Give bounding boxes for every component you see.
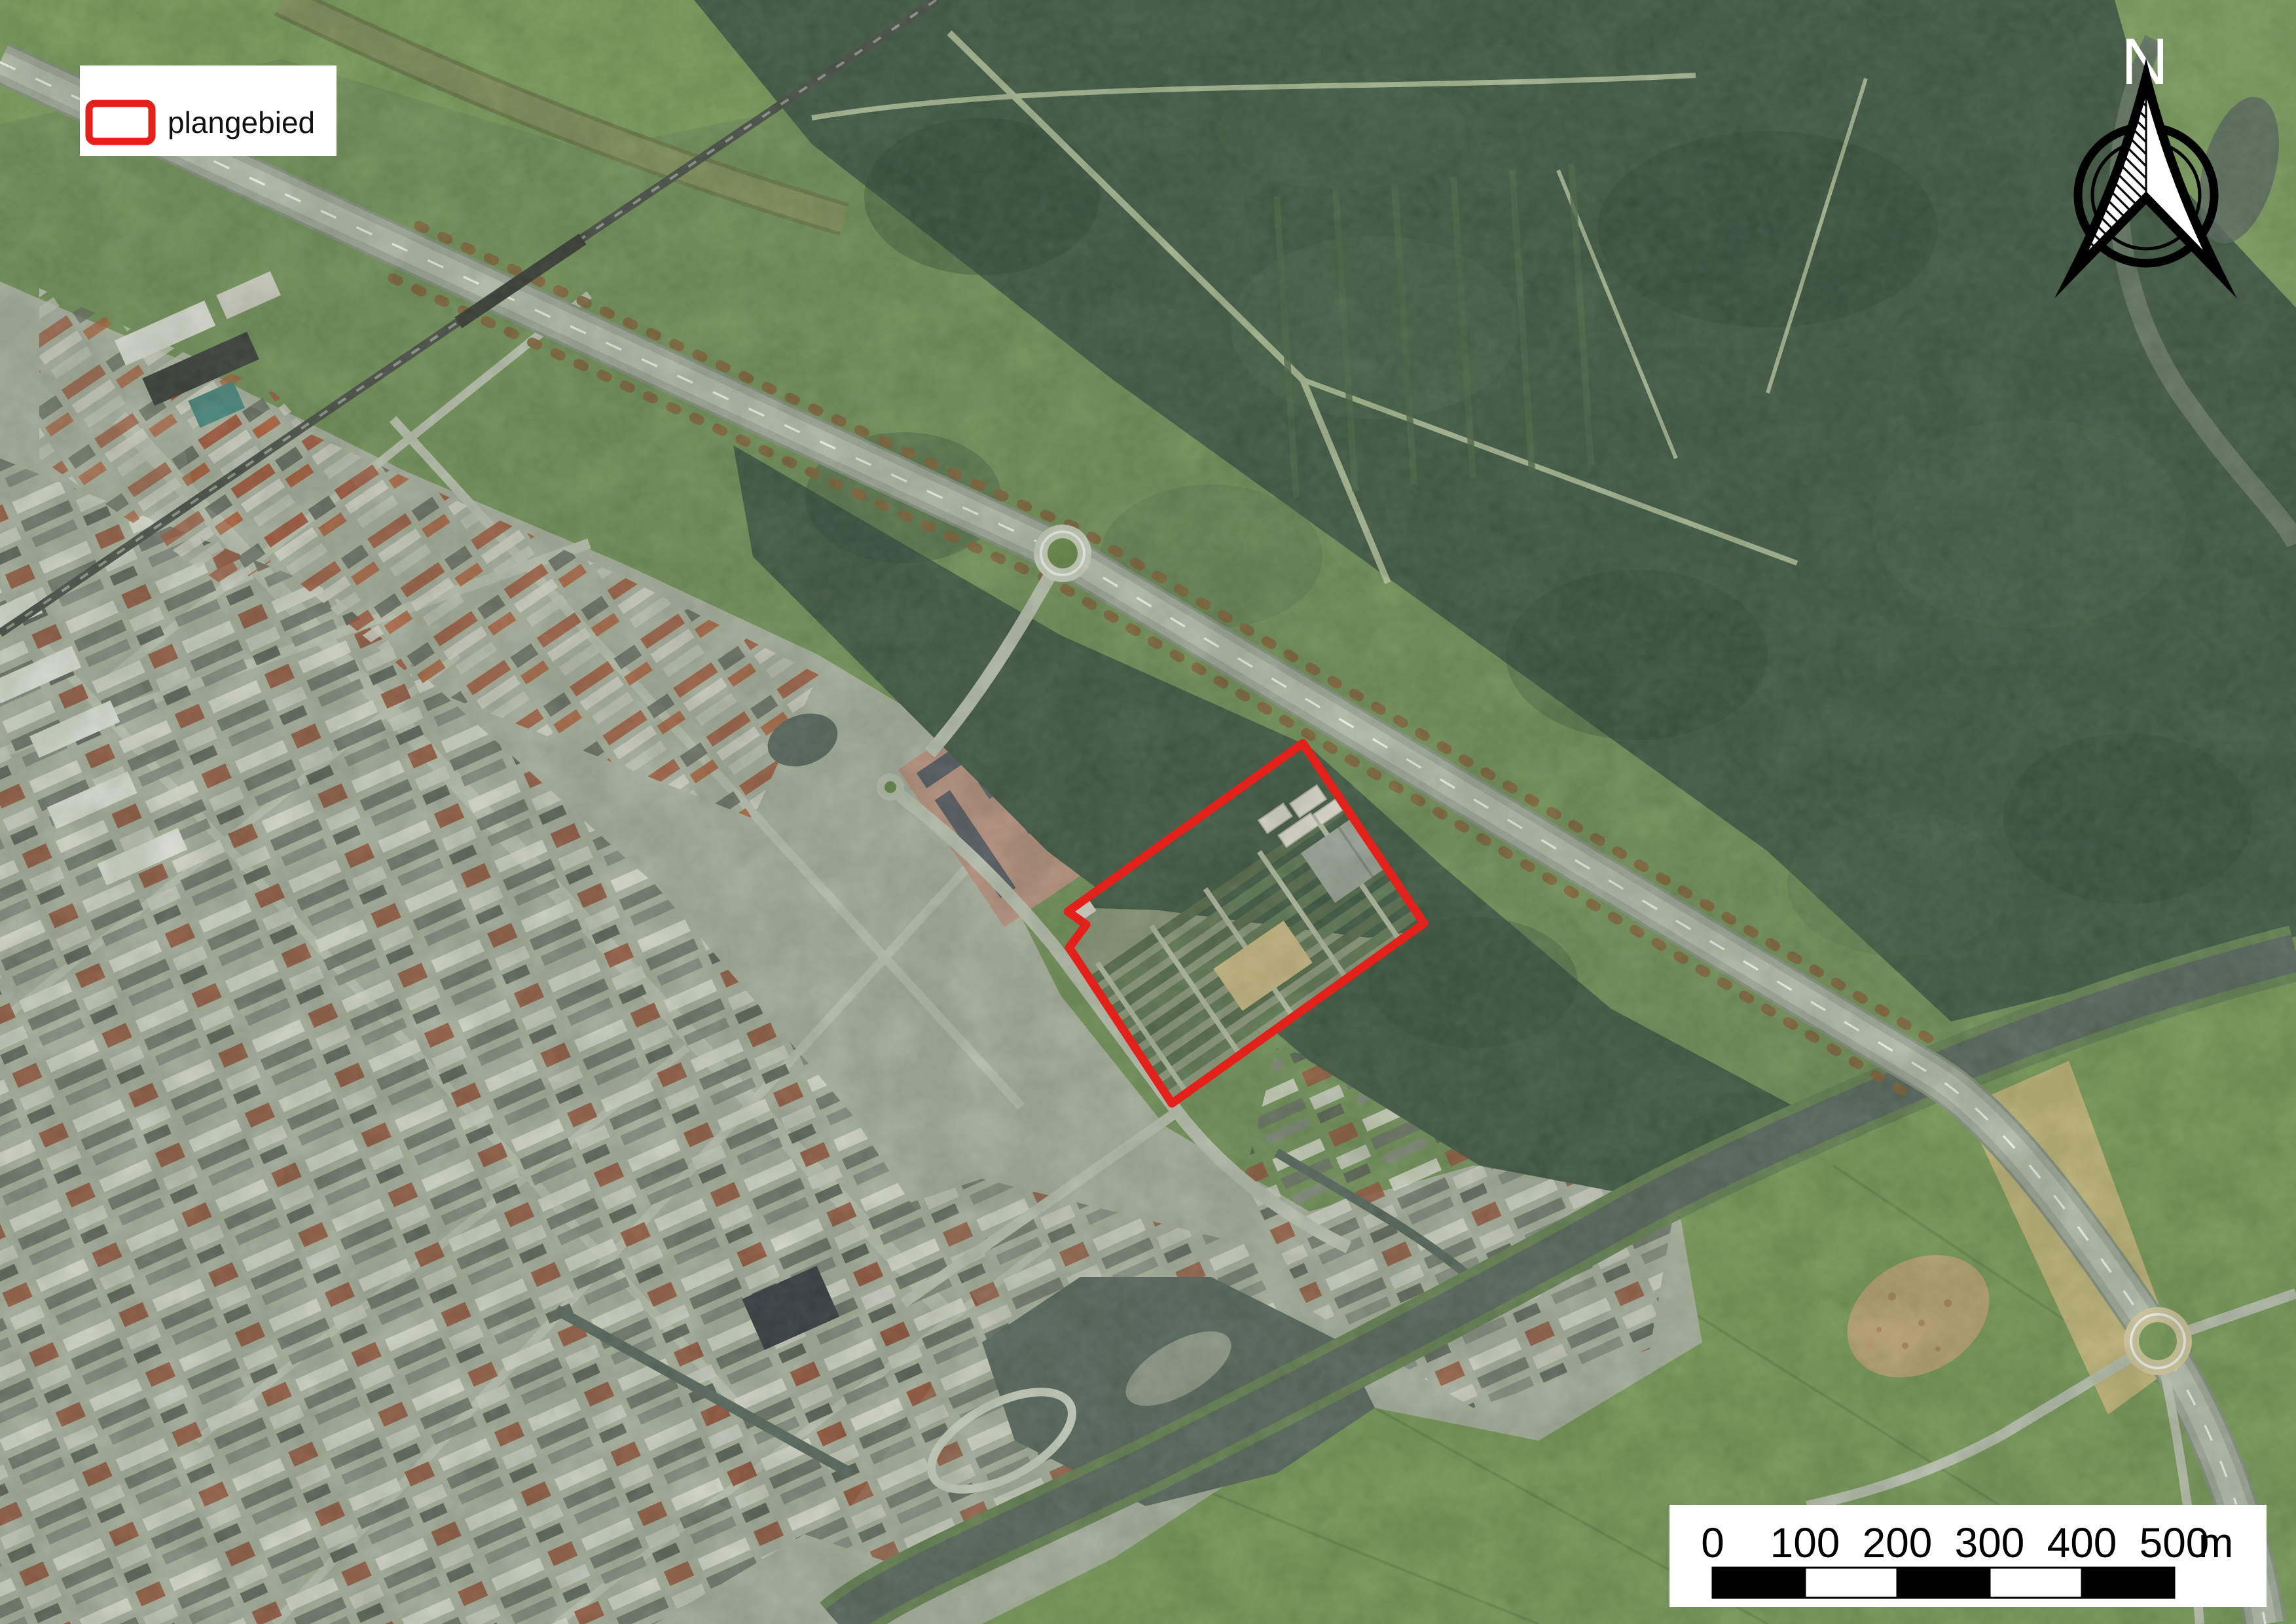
legend-label: plangebied xyxy=(168,105,315,139)
legend: plangebied xyxy=(80,65,337,156)
scalebar-label-100: 100 xyxy=(1770,1519,1840,1566)
map-canvas[interactable]: plangebied N 0 100 200 300 400 500 m xyxy=(0,0,2296,1624)
scale-bar: 0 100 200 300 400 500 m xyxy=(1669,1505,2267,1607)
scalebar-label-200: 200 xyxy=(1863,1519,1933,1566)
aerial-map[interactable]: plangebied N 0 100 200 300 400 500 m xyxy=(0,0,2296,1624)
aerial-grain-light xyxy=(0,0,2296,1624)
scalebar-labels: 0 100 200 300 400 500 m xyxy=(1701,1519,2233,1566)
scalebar-unit: m xyxy=(2198,1519,2233,1566)
scalebar-segments xyxy=(1713,1568,2174,1598)
scalebar-label-0: 0 xyxy=(1701,1519,1724,1566)
scalebar-label-400: 400 xyxy=(2047,1519,2117,1566)
plangebied-swatch-icon xyxy=(89,103,152,141)
scalebar-label-300: 300 xyxy=(1955,1519,2025,1566)
